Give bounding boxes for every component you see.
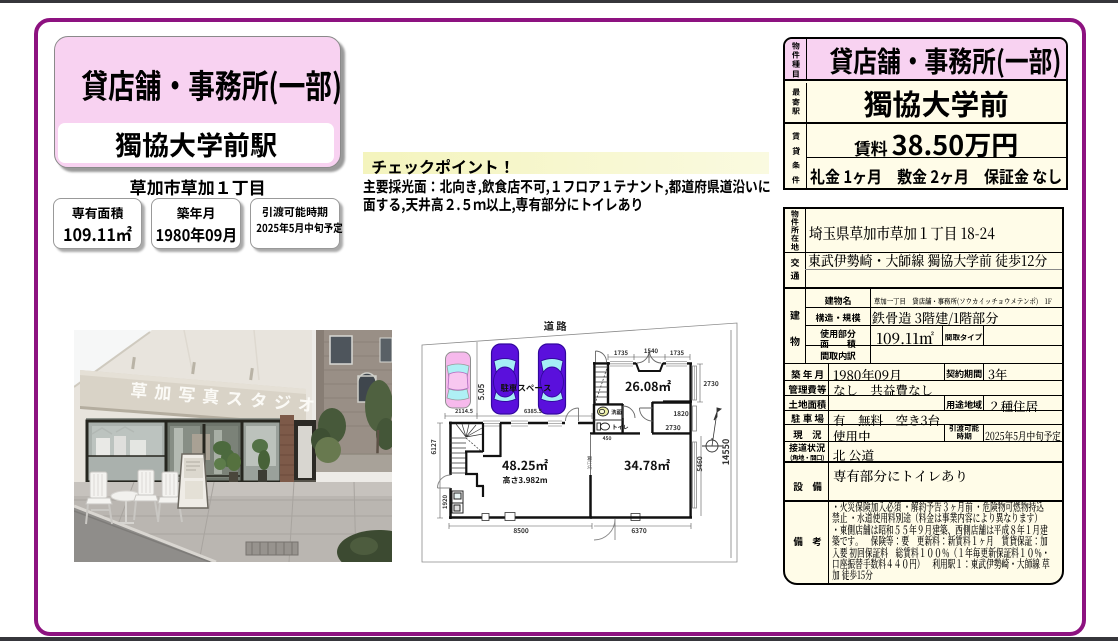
svg-text:6127: 6127: [428, 439, 438, 455]
svg-text:1735: 1735: [614, 348, 629, 357]
svg-text:道路: 道路: [544, 319, 569, 334]
svg-text:高さ3.982m: 高さ3.982m: [502, 475, 547, 486]
svg-text:5.05: 5.05: [476, 383, 487, 400]
svg-text:トイレ: トイレ: [612, 423, 629, 431]
svg-text:48.25㎡: 48.25㎡: [502, 455, 548, 474]
svg-text:26.08㎡: 26.08㎡: [625, 376, 671, 395]
svg-text:5460: 5460: [694, 456, 704, 472]
svg-text:1920: 1920: [440, 494, 449, 509]
svg-text:450: 450: [603, 435, 612, 442]
svg-text:2114.5: 2114.5: [455, 407, 473, 415]
svg-text:6370: 6370: [631, 525, 647, 535]
svg-text:14550: 14550: [719, 439, 732, 466]
svg-text:6385.5: 6385.5: [524, 407, 542, 415]
svg-text:洗面: 洗面: [611, 408, 623, 416]
svg-text:間仕切: 間仕切: [586, 456, 593, 470]
svg-text:1735: 1735: [670, 348, 685, 357]
svg-text:2730: 2730: [665, 422, 681, 432]
svg-text:2730: 2730: [703, 378, 719, 388]
svg-text:34.78㎡: 34.78㎡: [624, 455, 670, 474]
svg-text:1820: 1820: [673, 408, 689, 418]
svg-text:8500: 8500: [513, 525, 529, 535]
svg-text:駐車スペース: 駐車スペース: [499, 382, 551, 394]
svg-text:1540: 1540: [644, 346, 659, 355]
